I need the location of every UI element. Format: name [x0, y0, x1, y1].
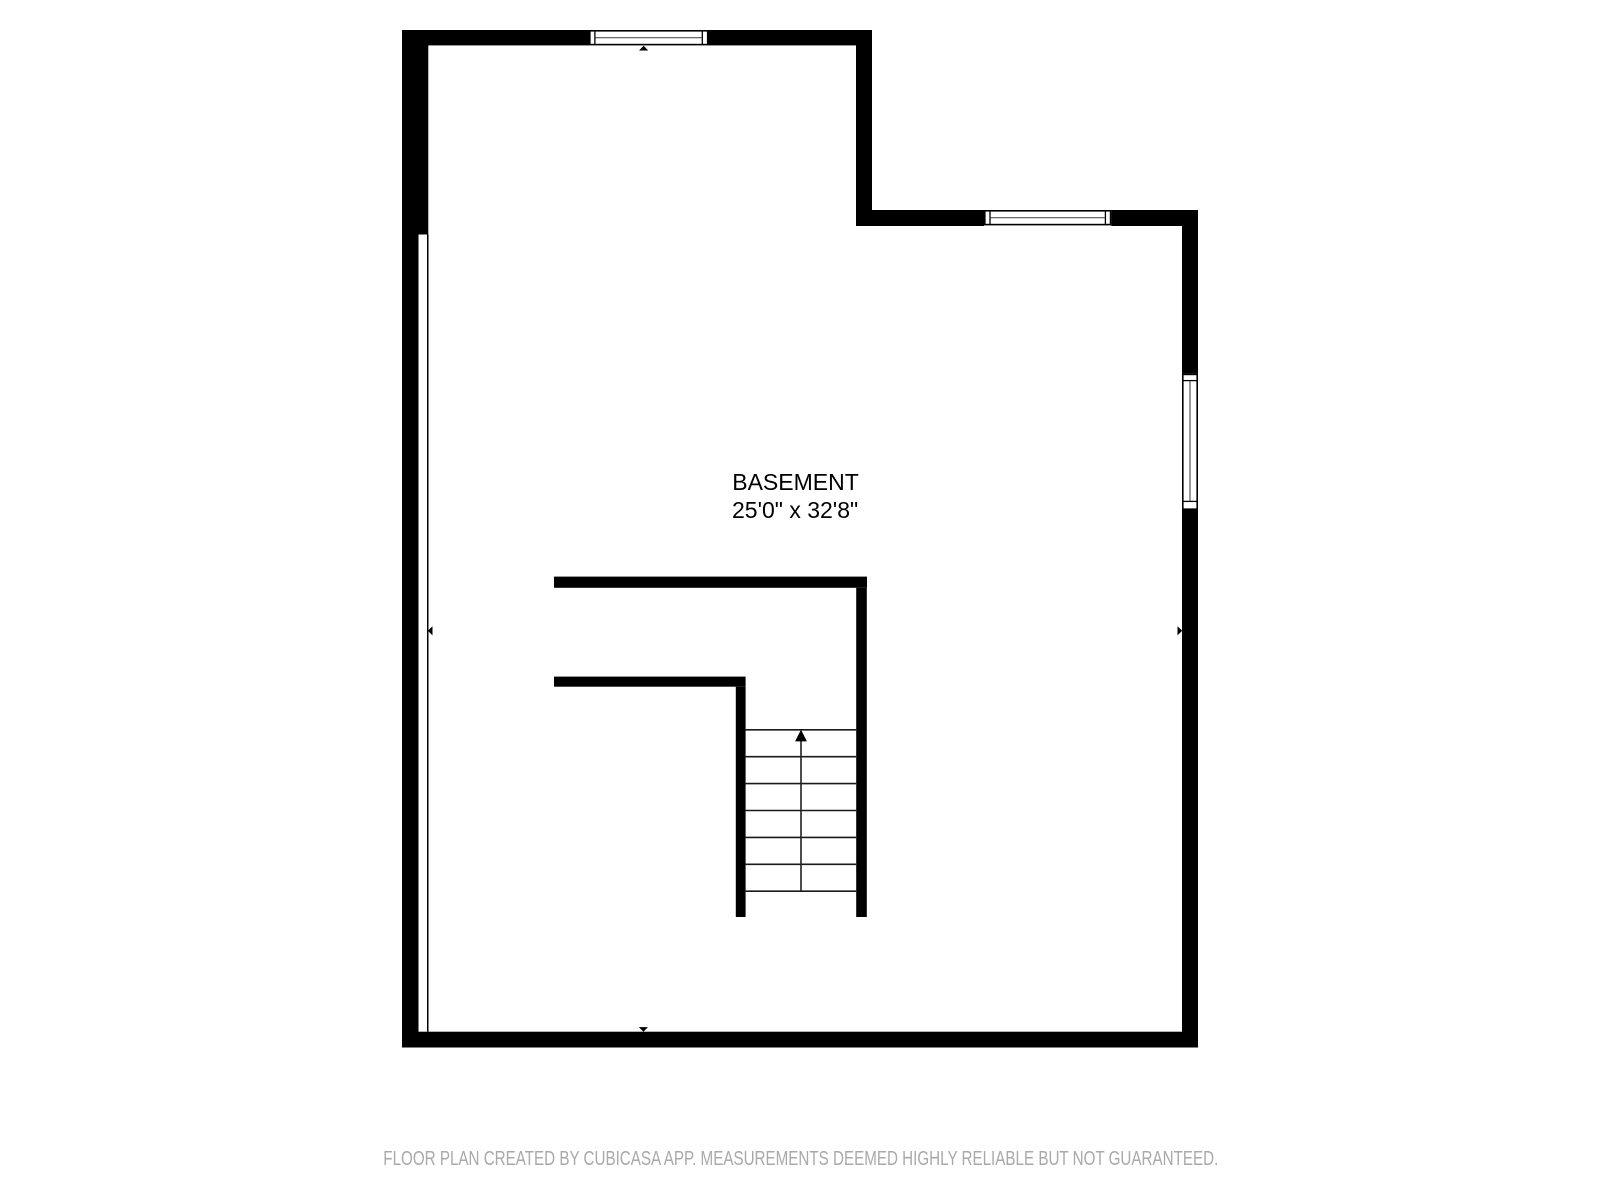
svg-text:BASEMENT: BASEMENT — [732, 469, 859, 495]
svg-text:FLOOR PLAN CREATED BY CUBICASA: FLOOR PLAN CREATED BY CUBICASA APP. MEAS… — [383, 1147, 1218, 1170]
svg-text:25'0" x 32'8": 25'0" x 32'8" — [732, 497, 858, 523]
